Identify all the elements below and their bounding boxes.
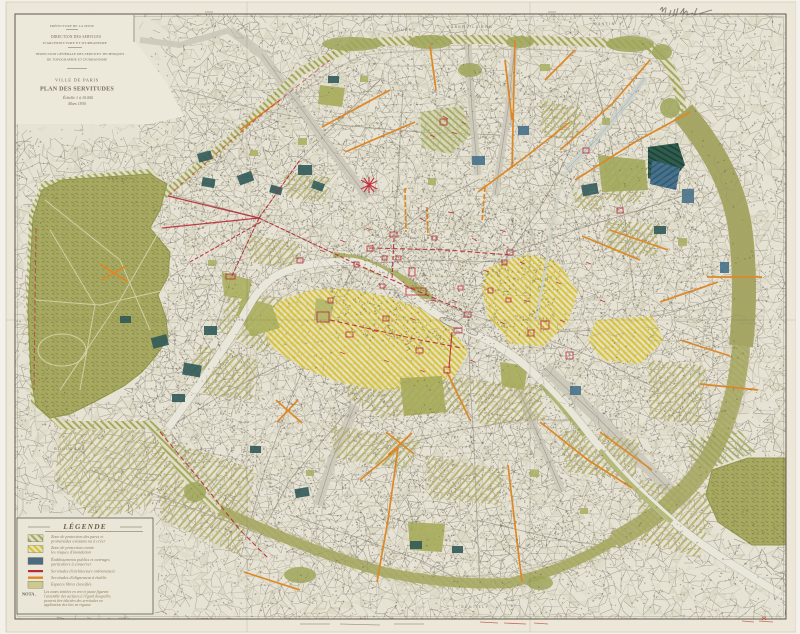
svg-text:D'ARCHITECTURE ET D'URBANISME: D'ARCHITECTURE ET D'URBANISME	[43, 41, 107, 45]
svg-text:VILLE DE PARIS: VILLE DE PARIS	[55, 78, 99, 83]
svg-text:Espaces libres classifiés: Espaces libres classifiés	[50, 582, 92, 587]
svg-text:BOULOGNE: BOULOGNE	[54, 447, 86, 451]
svg-text:PLAN DES SERVITUDES: PLAN DES SERVITUDES	[40, 87, 114, 93]
svg-text:IVRY: IVRY	[383, 521, 397, 525]
svg-text:Échelle 1 à 10.000: Échelle 1 à 10.000	[62, 95, 93, 100]
svg-text:Les zones teintées en vert et: Les zones teintées en vert et jaune figu…	[43, 590, 109, 594]
svg-text:PANTIN: PANTIN	[594, 22, 615, 26]
svg-text:application des lois en vigueu: application des lois en vigueur.	[44, 603, 91, 607]
svg-text:Mars 1930: Mars 1930	[67, 101, 85, 106]
svg-text:INSPECTION GÉNÉRALE DES SERVIC: INSPECTION GÉNÉRALE DES SERVICES TECHNIQ…	[36, 51, 125, 56]
svg-text:peuvent être édictées des serv: peuvent être édictées des servitudes en	[43, 599, 103, 603]
svg-text:GENTILLY: GENTILLY	[461, 605, 489, 609]
svg-text:particuliers à conserver: particuliers à conserver	[50, 561, 92, 566]
svg-text:DE TOPOGRAPHIE ET D'URBANISME: DE TOPOGRAPHIE ET D'URBANISME	[47, 58, 108, 62]
svg-text:ST OUEN: ST OUEN	[387, 28, 413, 32]
svg-text:promenades existants ou à crée: promenades existants ou à créer	[50, 539, 106, 544]
svg-text:ISSY: ISSY	[141, 493, 155, 497]
svg-text:LÉGENDE: LÉGENDE	[62, 521, 107, 531]
svg-text:AUBERVILLIERS: AUBERVILLIERS	[447, 25, 493, 29]
svg-text:Servitudes d'architecture ordo: Servitudes d'architecture ordonnancée	[51, 568, 116, 573]
svg-text:NEUILLY: NEUILLY	[108, 177, 133, 181]
svg-text:les risques d'inondation: les risques d'inondation	[51, 549, 91, 554]
svg-text:NOTA .: NOTA .	[22, 592, 36, 597]
svg-text:l'ensemble des surfaces à l'ég: l'ensemble des surfaces à l'égard desque…	[44, 594, 111, 598]
svg-text:DIRECTION DES SERVICES: DIRECTION DES SERVICES	[51, 35, 101, 39]
svg-text:PRÉFECTURE DE LA SEINE: PRÉFECTURE DE LA SEINE	[50, 23, 94, 28]
svg-text:Servitudes d'alignement à étab: Servitudes d'alignement à établir	[51, 575, 107, 580]
